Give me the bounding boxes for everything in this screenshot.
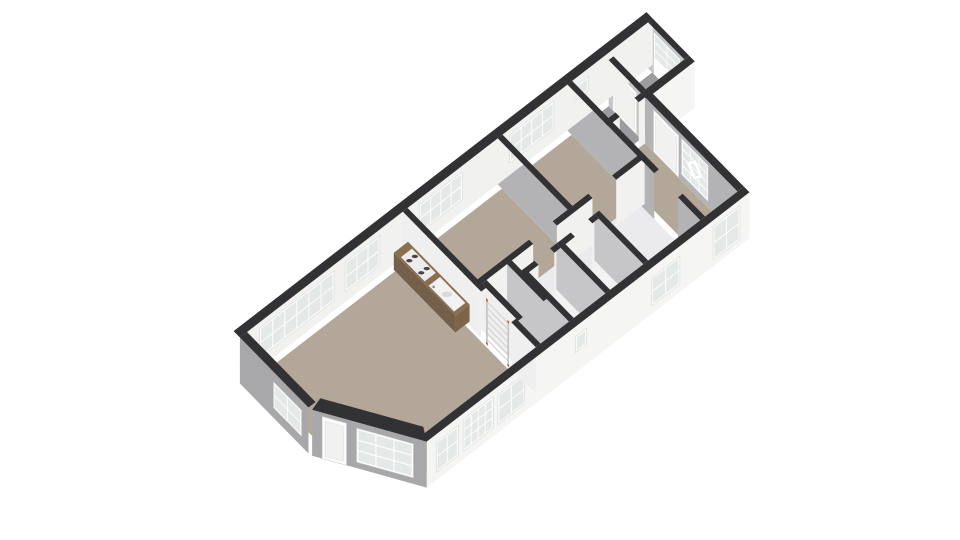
ladder-rail: [507, 320, 509, 368]
stove-burner: [406, 259, 412, 262]
sink-bowl: [442, 292, 452, 297]
stove-burner: [424, 267, 430, 270]
sink-faucet: [432, 286, 435, 289]
stove-burner: [418, 271, 424, 274]
wall-vest-div-b: [639, 97, 645, 148]
wall-face-vest-div-b: [639, 97, 645, 148]
door-panel-chamfer-bay: [325, 421, 343, 461]
stove-burner: [412, 255, 418, 258]
floorplan-3d-view: [0, 0, 960, 540]
ladder-rail: [486, 298, 488, 346]
floorplan-canvas: [0, 0, 960, 540]
